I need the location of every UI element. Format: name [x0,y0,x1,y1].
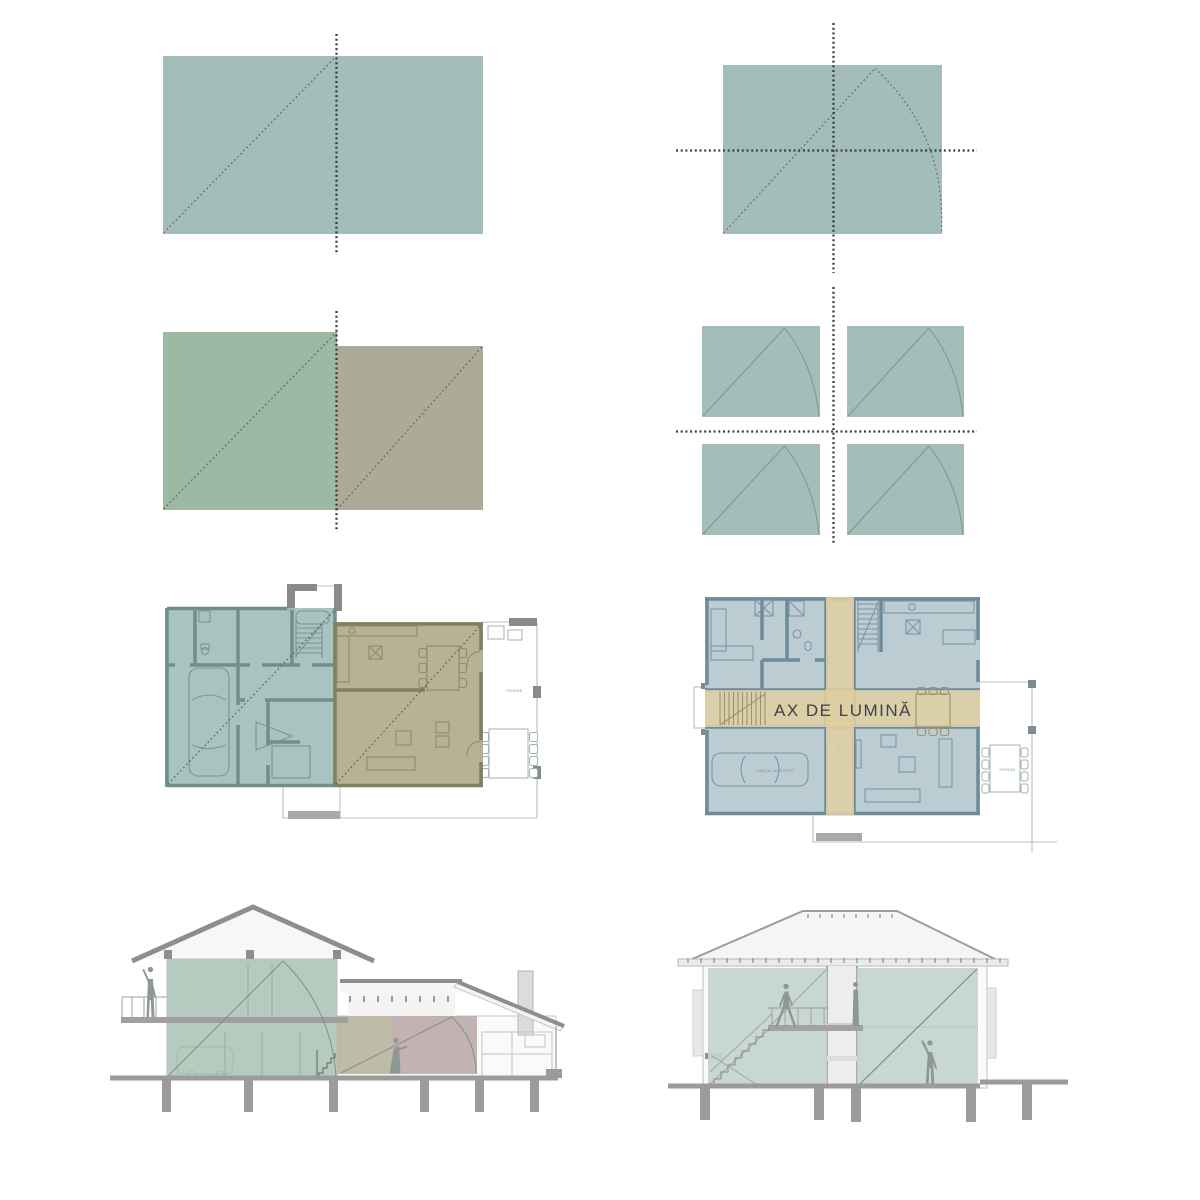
eave-post [164,950,172,959]
wall-pier-1 [1028,680,1036,688]
pier [814,1088,824,1120]
wall-chunk-top [509,618,537,626]
fig-volume-axis [163,34,483,255]
pier [1022,1084,1032,1120]
person-head [927,1040,932,1045]
deck-step [816,833,862,841]
person-body [853,990,860,1027]
chair [982,772,989,781]
person-head [393,1038,398,1043]
pier [700,1088,710,1120]
terrace-label: TERASĂ [506,689,522,693]
quadrant-rect-bl [702,444,820,535]
terrace-dining-set [481,729,538,778]
hipped-roof [683,911,1003,963]
fig-section-left [110,907,564,1112]
chair [530,757,538,766]
tan-section-overlay [337,1016,392,1074]
pier [244,1080,253,1112]
person-head [783,984,788,989]
left-facade-layer [693,990,703,1056]
porch-wall-top [287,584,317,591]
pier [530,1080,539,1112]
foundation-piers [162,1080,539,1112]
axis-of-light-label: AX DE LUMINĂ [774,701,912,720]
balcony-railing [122,997,167,1017]
chair [1021,784,1028,793]
fig-four-quadrants [676,287,977,545]
fig-floorplan-right: TERASĂ [694,597,1057,852]
architecture-concept-board: TERASĂ [0,0,1200,1200]
covered-parking-label: PARCAJ ACOPERIT [757,769,795,773]
right-facade-layer [987,988,996,1058]
porch-wall-right [334,584,342,611]
fig-section-right [668,911,1068,1122]
fig-two-volumes [163,311,483,532]
chair [982,784,989,793]
chair [530,733,538,742]
person-head [148,967,153,972]
eave-post [333,950,341,959]
pier [475,1080,484,1112]
concept-board-svg: TERASĂ [0,0,1200,1200]
entry-porch [287,584,342,611]
person-on-balcony [144,967,156,1017]
fig-volume-sunpath [676,23,977,273]
wall-pier-2 [1028,726,1036,734]
ground-step [546,1069,562,1078]
pier [966,1088,976,1122]
quadrant-rect-br [847,444,964,535]
pier [420,1080,429,1112]
chair [530,769,538,778]
shaft-slab-lower [827,1056,857,1061]
chair [982,748,989,757]
person-body [147,979,155,1017]
pier [162,1080,171,1112]
person-head [853,982,858,987]
pier [329,1080,338,1112]
terrace-label: TERASĂ [999,768,1015,772]
mezzanine-slab [768,1025,863,1031]
fig-floorplan-left: TERASĂ [165,584,541,819]
ridge-post [246,950,254,959]
floor-slab [121,1017,348,1023]
terrace-table [489,729,528,778]
chair [1021,760,1028,769]
counter-box-1 [488,626,504,639]
chair [1021,748,1028,757]
chair [530,745,538,754]
clerestory-band [348,992,455,1016]
chair [982,760,989,769]
deck-step [288,811,340,819]
volume-rect [163,56,483,234]
chimney [518,971,533,1035]
pier [851,1088,861,1122]
counter-box-2 [508,630,522,640]
chair [1021,772,1028,781]
foundation-piers [700,1084,1032,1122]
person-raised-arm [144,970,150,982]
wall-pier-1 [533,686,541,698]
quadrant-rect-tr [847,326,964,417]
side-balcony [694,687,706,728]
red-section-overlay [392,1016,477,1074]
flat-roof-fill [340,983,462,993]
quadrant-rect-tl [702,326,820,417]
